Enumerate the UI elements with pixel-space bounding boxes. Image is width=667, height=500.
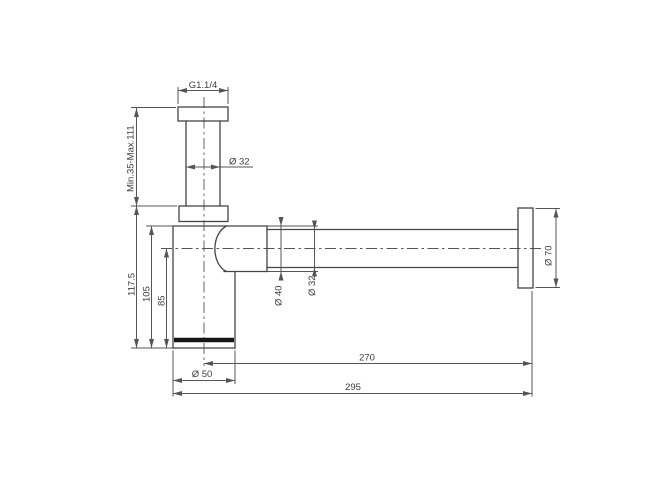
- rosette-diameter-label: Ø 70: [544, 245, 555, 266]
- dim-inlet-range: Min.35-Max.111: [126, 108, 178, 207]
- dim-thread: G1.1/4: [178, 80, 228, 104]
- inlet-tailpiece: [186, 121, 220, 206]
- inlet-diameter-label: Ø 32: [229, 157, 250, 168]
- technical-drawing-page: G1.1/4 Min.35-Max.111 Ø 32 117.5 105 85 …: [0, 0, 667, 500]
- dim-total-length: 295: [173, 382, 532, 394]
- dim-axis-to-wall: 270: [204, 291, 532, 397]
- body-diameter-label: Ø 50: [192, 369, 213, 380]
- dim-tube-diameter: Ø 32: [307, 221, 318, 297]
- thread-label: G1.1/4: [189, 80, 218, 91]
- body-top-nut: [179, 206, 228, 222]
- outlet-nut-diameter-label: Ø 40: [274, 285, 285, 306]
- height-axis-label: 85: [157, 295, 168, 306]
- dim-height-body: 105: [142, 226, 173, 348]
- bottle-trap-drawing: G1.1/4 Min.35-Max.111 Ø 32 117.5 105 85 …: [0, 0, 667, 500]
- height-total-label: 117.5: [127, 273, 138, 296]
- total-length-label: 295: [345, 382, 361, 393]
- trap-body: [173, 226, 267, 348]
- axis-to-wall-label: 270: [359, 353, 375, 364]
- tube-diameter-label: Ø 32: [307, 275, 318, 296]
- dim-rosette-diameter: Ø 70: [536, 209, 561, 288]
- dim-height-axis: 85: [157, 249, 168, 349]
- centerlines: [161, 97, 543, 366]
- inlet-range-label: Min.35-Max.111: [126, 125, 137, 192]
- wall-rosette: [518, 208, 533, 288]
- height-body-label: 105: [142, 286, 153, 302]
- bottle-trap-outline: [173, 107, 533, 348]
- dim-body-diameter: Ø 50: [173, 351, 235, 397]
- inlet-nut: [178, 107, 228, 121]
